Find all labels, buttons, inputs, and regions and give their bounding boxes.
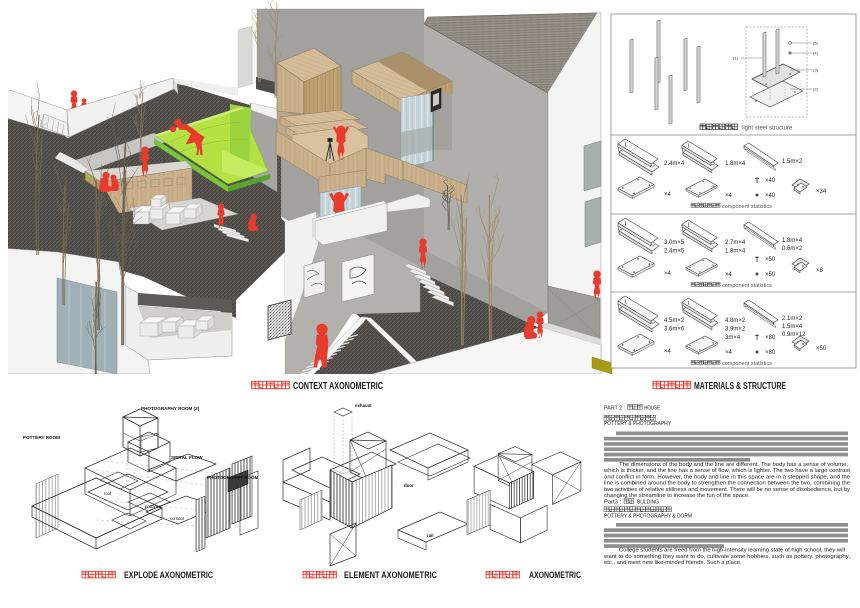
svg-text:1.8m×4: 1.8m×4 (782, 238, 803, 244)
svg-text:×50: ×50 (816, 346, 827, 352)
svg-text:×40: ×40 (765, 193, 776, 199)
svg-text:2.4m×4: 2.4m×4 (664, 161, 685, 167)
svg-text:×4: ×4 (664, 271, 672, 277)
svg-text:PHOTOGRAPHY ROOM (2): PHOTOGRAPHY ROOM (2) (141, 406, 200, 411)
svg-text:POTTERY & PHOTOGRAPHY & DORM: POTTERY & PHOTOGRAPHY & DORM (604, 514, 692, 520)
svg-text:×4: ×4 (725, 350, 733, 356)
svg-text:(3): (3) (813, 68, 819, 73)
svg-text:×80: ×80 (765, 350, 776, 356)
svg-text:3m×4: 3m×4 (725, 335, 741, 341)
svg-text:POTTERY ROOM: POTTERY ROOM (23, 435, 60, 440)
svg-text:door: door (404, 483, 414, 488)
svg-text:2.1m×2: 2.1m×2 (782, 316, 803, 322)
svg-text:want to do something they want: want to do something they want to do, cu… (603, 554, 850, 560)
svg-text:1.5m×2: 1.5m×2 (782, 159, 803, 165)
svg-text:rail: rail (427, 533, 434, 538)
svg-text:(4): (4) (813, 51, 819, 56)
svg-text:etc., and meet new like-minded: etc., and meet new like-minded friends. … (604, 560, 742, 566)
svg-text:component statistics: component statistics (722, 283, 772, 289)
svg-text:1.5m×4: 1.5m×4 (782, 324, 803, 330)
svg-text:2.7m×4: 2.7m×4 (725, 240, 746, 246)
svg-text:MATERIALS & STRUCTURE: MATERIALS & STRUCTURE (694, 380, 786, 392)
svg-text:2.4m×5: 2.4m×5 (664, 249, 685, 255)
svg-text:PHOTOGRAPHY ROOM: PHOTOGRAPHY ROOM (207, 475, 259, 480)
svg-text:changing the streamline to inc: changing the streamline to increase the … (604, 493, 750, 499)
svg-text:×40: ×40 (765, 178, 776, 184)
svg-text:The dimensions of the body and: The dimensions of the body and the line … (619, 462, 848, 468)
svg-text:entrance: entrance (145, 504, 162, 509)
svg-text:BULDING: BULDING (637, 500, 659, 506)
svg-text:×4: ×4 (725, 193, 733, 199)
svg-text:PART 2 :: PART 2 : (604, 405, 625, 411)
svg-text:(2): (2) (813, 87, 819, 92)
svg-text:3.6m×6: 3.6m×6 (664, 327, 685, 333)
svg-text:3.0m×5: 3.0m×5 (664, 240, 685, 246)
svg-text:×4: ×4 (664, 192, 672, 198)
svg-text:HOUSE: HOUSE (644, 405, 660, 411)
svg-text:component statistics: component statistics (722, 204, 772, 210)
svg-text:component statistics: component statistics (722, 361, 772, 367)
svg-text:which is thicker, and the line: which is thicker, and the line has a sen… (603, 468, 850, 474)
svg-text:exhaust: exhaust (355, 403, 372, 408)
svg-text:line is combined around the bo: line is combined around the body to stre… (604, 481, 850, 487)
svg-text:×34: ×34 (816, 189, 827, 195)
svg-text:×8: ×8 (816, 268, 824, 274)
svg-text:EXPLODE AXONOMETRIC: EXPLODE AXONOMETRIC (124, 570, 213, 580)
svg-text:×80: ×80 (765, 335, 776, 341)
svg-text:two activities of relative sti: two activities of relative stillness and… (604, 487, 850, 493)
svg-text:×4: ×4 (664, 349, 672, 355)
svg-text:AXONOMETRIC: AXONOMETRIC (529, 570, 581, 580)
svg-text:SPIRAL FLOW: SPIRAL FLOW (171, 455, 203, 460)
svg-text:light steel structure: light steel structure (742, 126, 793, 132)
svg-text:0.6m×2: 0.6m×2 (782, 246, 803, 252)
svg-text:×4: ×4 (725, 272, 733, 278)
svg-text:(1): (1) (733, 56, 739, 61)
svg-text:and conflict in form. However,: and conflict in form. However, the body … (604, 474, 850, 480)
svg-text:CONTEXT AXONOMETRIC: CONTEXT AXONOMETRIC (293, 380, 383, 392)
svg-text:(5): (5) (813, 41, 819, 46)
svg-text:College students are freed fro: College students are freed from the high… (619, 548, 845, 554)
svg-text:3.9m×2: 3.9m×2 (725, 327, 746, 333)
svg-text:4.8m×2: 4.8m×2 (725, 318, 746, 324)
svg-text:×50: ×50 (765, 272, 776, 278)
svg-text:ELEMENT AXONOMETRIC: ELEMENT AXONOMETRIC (344, 570, 437, 580)
svg-text:1.8m×4: 1.8m×4 (725, 249, 746, 255)
svg-text:roof: roof (104, 491, 112, 496)
svg-text:4.5m×2: 4.5m×2 (664, 318, 685, 324)
svg-text:POTTERY & PHOTOGRAPHY: POTTERY & PHOTOGRAPHY (604, 421, 671, 427)
svg-text:1.8m×4: 1.8m×4 (725, 161, 746, 167)
svg-text:×50: ×50 (765, 257, 776, 263)
svg-text:corridor: corridor (170, 516, 185, 521)
svg-text:Part3 :: Part3 : (604, 500, 621, 506)
